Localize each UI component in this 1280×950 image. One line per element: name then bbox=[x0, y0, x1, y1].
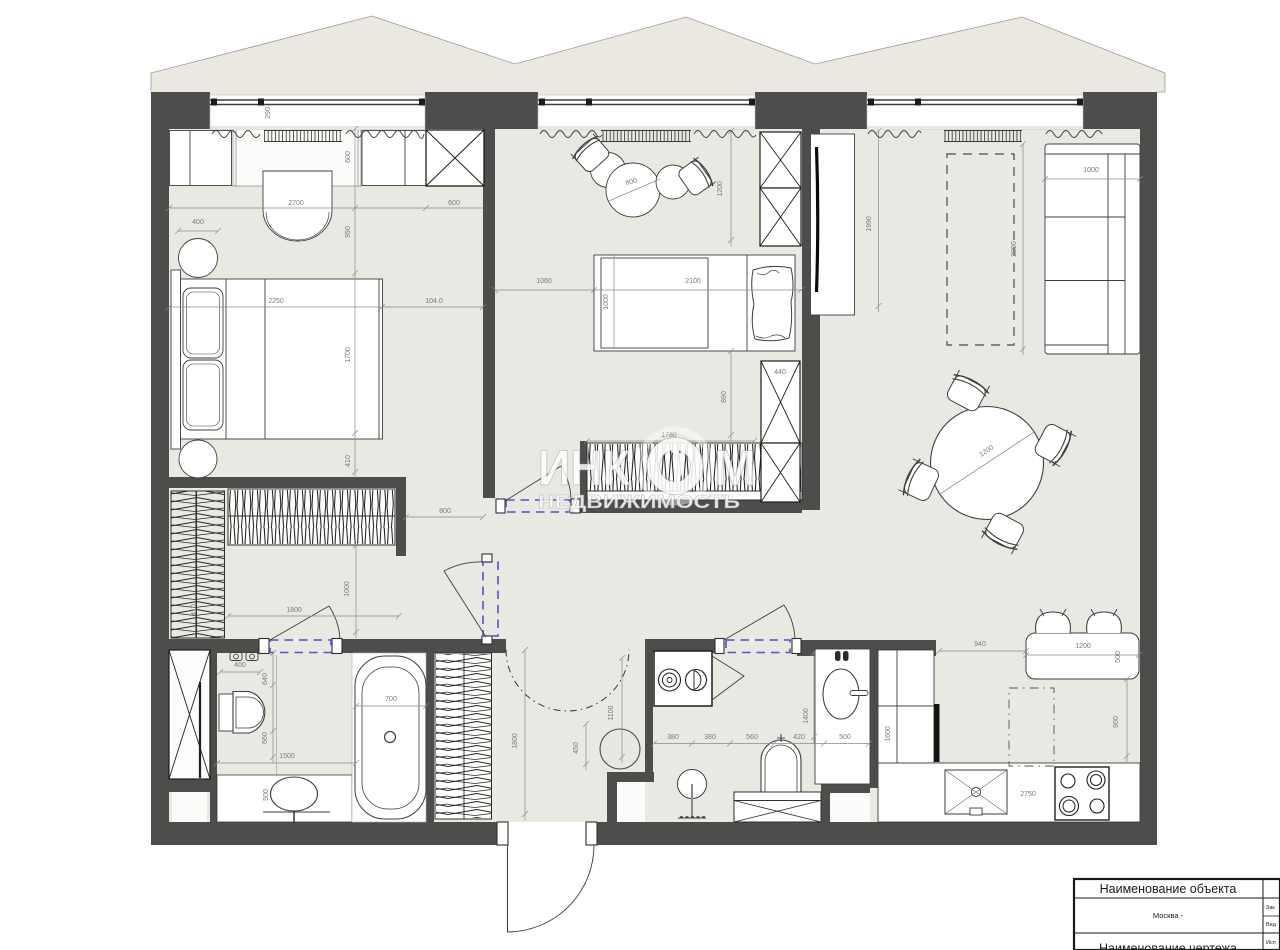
svg-text:800: 800 bbox=[439, 508, 451, 515]
svg-text:Наименование чертежа: Наименование чертежа bbox=[1099, 942, 1237, 950]
svg-text:ИНК: ИНК bbox=[538, 440, 630, 496]
svg-text:410: 410 bbox=[191, 604, 198, 616]
svg-text:410: 410 bbox=[345, 455, 352, 467]
svg-text:2750: 2750 bbox=[1020, 791, 1036, 798]
svg-text:290: 290 bbox=[265, 107, 272, 119]
svg-text:1000: 1000 bbox=[1083, 167, 1099, 174]
svg-text:450: 450 bbox=[573, 742, 580, 754]
svg-text:2250: 2250 bbox=[268, 298, 284, 305]
svg-text:Зак: Зак bbox=[1266, 905, 1275, 911]
svg-text:950: 950 bbox=[345, 226, 352, 238]
svg-text:660: 660 bbox=[262, 732, 269, 744]
svg-text:400: 400 bbox=[234, 662, 246, 669]
svg-text:1500: 1500 bbox=[279, 753, 295, 760]
svg-text:500: 500 bbox=[1115, 651, 1122, 663]
svg-text:440: 440 bbox=[774, 369, 786, 376]
svg-text:1000: 1000 bbox=[344, 581, 351, 597]
svg-text:560: 560 bbox=[746, 734, 758, 741]
svg-text:Вед: Вед bbox=[1266, 922, 1277, 928]
svg-text:1000: 1000 bbox=[603, 294, 610, 310]
svg-text:2100: 2100 bbox=[685, 278, 701, 285]
svg-text:1200: 1200 bbox=[717, 181, 724, 197]
svg-text:2200: 2200 bbox=[1011, 241, 1018, 257]
svg-text:380: 380 bbox=[704, 734, 716, 741]
svg-text:104.0: 104.0 bbox=[425, 298, 443, 305]
svg-text:1600: 1600 bbox=[885, 726, 892, 742]
svg-text:700: 700 bbox=[385, 696, 397, 703]
svg-text:400: 400 bbox=[192, 219, 204, 226]
svg-text:600: 600 bbox=[345, 151, 352, 163]
svg-text:900: 900 bbox=[1113, 716, 1120, 728]
svg-text:1400: 1400 bbox=[803, 708, 810, 724]
svg-text:М: М bbox=[714, 440, 756, 496]
svg-text:2700: 2700 bbox=[288, 200, 304, 207]
svg-text:500: 500 bbox=[263, 789, 270, 801]
svg-text:500: 500 bbox=[839, 734, 851, 741]
svg-text:1990: 1990 bbox=[866, 216, 873, 232]
svg-text:890: 890 bbox=[721, 391, 728, 403]
svg-text:1700: 1700 bbox=[345, 347, 352, 363]
svg-text:1800: 1800 bbox=[286, 607, 302, 614]
svg-text:Исп: Исп bbox=[1266, 940, 1276, 946]
svg-text:Наименование объекта: Наименование объекта bbox=[1100, 882, 1237, 896]
svg-text:1800: 1800 bbox=[512, 733, 519, 749]
svg-text:600: 600 bbox=[448, 200, 460, 207]
svg-text:НЕДВИЖИМОСТЬ: НЕДВИЖИМОСТЬ bbox=[538, 492, 740, 512]
svg-text:640: 640 bbox=[262, 673, 269, 685]
svg-text:380: 380 bbox=[667, 734, 679, 741]
svg-text:1200: 1200 bbox=[1075, 643, 1091, 650]
svg-text:Москва -: Москва - bbox=[1153, 911, 1184, 920]
svg-text:420: 420 bbox=[793, 734, 805, 741]
svg-text:1100: 1100 bbox=[608, 705, 615, 720]
svg-text:940: 940 bbox=[974, 641, 986, 648]
svg-text:1060: 1060 bbox=[536, 278, 552, 285]
